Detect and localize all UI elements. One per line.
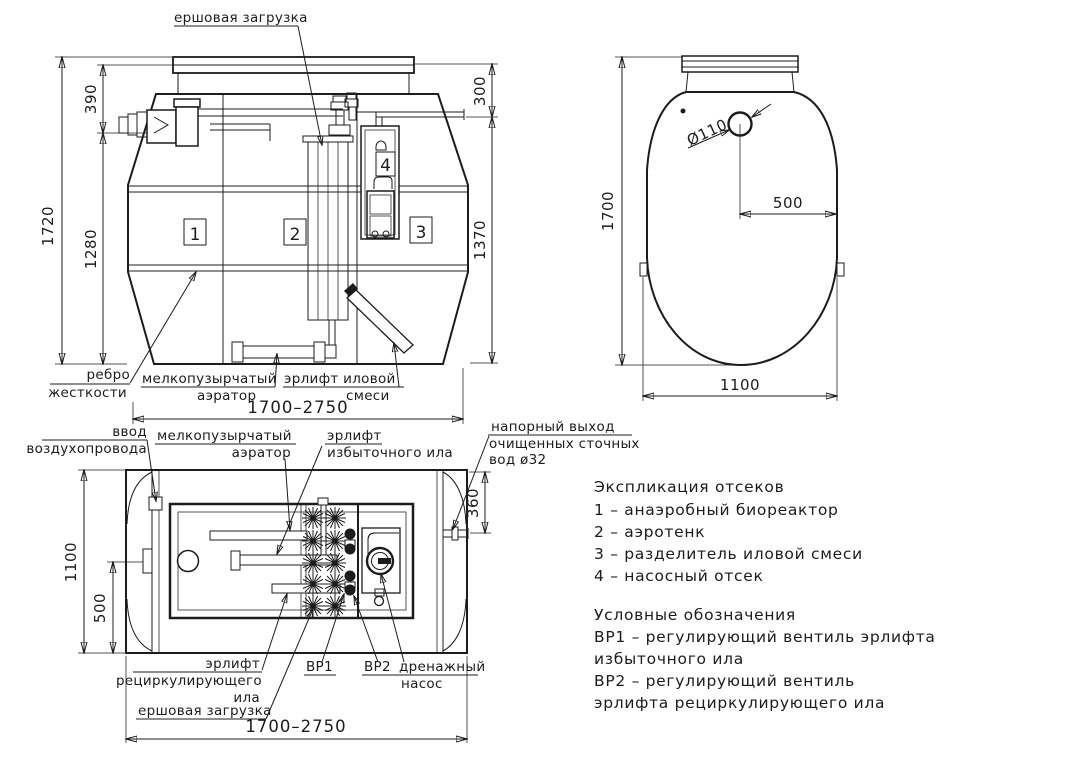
- ersh-load-label: ершовая загрузка: [174, 10, 308, 26]
- recirc-label-line2: рециркулирующего: [116, 673, 262, 689]
- air-inlet-label-line1: ввод: [112, 424, 147, 440]
- rib-label-line1: ребро: [86, 367, 130, 383]
- dimension-1720: 1720: [39, 57, 172, 364]
- excess-airlift-label-line1: эрлифт: [327, 428, 382, 444]
- sludge-airlift-label-line2: смеси: [346, 388, 390, 404]
- outlet-label-line3: вод ø32: [489, 452, 546, 468]
- dim-front-width-value: 1700–2750: [247, 398, 348, 417]
- dimension-500-plan: 500: [91, 562, 143, 653]
- dim-390-value: 390: [82, 84, 100, 114]
- drain-pump-label-line2: насос: [401, 676, 443, 692]
- dimension-360: 360: [464, 472, 491, 533]
- explication-item-1: 1 – анаэробный биореактор: [594, 501, 839, 519]
- right-lug: [837, 263, 844, 276]
- label-vr2: ВР2: [354, 596, 398, 675]
- label-air-inlet: ввод воздухопровода: [26, 424, 156, 501]
- dimension-1100-top: 1100: [643, 277, 837, 401]
- technical-drawing-canvas: 1 2 3 4 ершовая загрузка ребро жесткости…: [0, 0, 1080, 772]
- dim-1280-value: 1280: [82, 229, 100, 269]
- front-section-view: 1 2 3 4 ершовая загрузка ребро жесткости…: [39, 10, 498, 424]
- rib-label-line2: жесткости: [48, 385, 127, 401]
- tank-shell-top-outline: [647, 92, 837, 365]
- inspection-hole: Ø110: [684, 104, 771, 219]
- dim-1370-value: 1370: [471, 220, 489, 260]
- explication-item-4: 4 – насосный отсек: [594, 567, 764, 585]
- vent-dot: [681, 109, 686, 114]
- outlet-label-line1: напорный выход: [491, 419, 615, 435]
- sludge-airlift-label-line1: эрлифт иловой: [284, 371, 396, 387]
- dim-300-value: 300: [471, 76, 489, 106]
- dim-hole-value: Ø110: [684, 115, 730, 149]
- compartment-3-number: 3: [416, 223, 427, 243]
- label-recirc-airlift: эрлифт рециркулирующего ила: [116, 594, 287, 706]
- fine-bubble-aerator-front: [232, 320, 336, 362]
- symbols-item-2: избыточного ила: [594, 650, 744, 668]
- dim-1720-value: 1720: [39, 206, 57, 246]
- dim-1100-plan-value: 1100: [62, 542, 80, 582]
- dimension-500-top: 500: [740, 194, 836, 214]
- aerator-tube-plan: [210, 531, 307, 540]
- left-stub: [143, 549, 152, 573]
- pump-bay-plan: [362, 528, 400, 606]
- recirc-label-line1: эрлифт: [205, 656, 260, 672]
- plan-view: ввод воздухопровода мелкопузырчатый аэра…: [26, 419, 639, 743]
- symbols-item-1: ВР1 – регулирующий вентиль эрлифта: [594, 628, 936, 646]
- symbols-item-3: ВР2 – регулирующий вентиль: [594, 672, 855, 690]
- dim-1100-top-value: 1100: [720, 376, 760, 394]
- top-view-lid: [682, 56, 798, 92]
- legend-block: Экспликация отсеков 1 – анаэробный биоре…: [594, 478, 936, 712]
- drawing-page: 1 2 3 4 ершовая загрузка ребро жесткости…: [0, 0, 1080, 772]
- explication-title: Экспликация отсеков: [594, 478, 784, 496]
- regulating-valves: [345, 529, 356, 596]
- aerator-label-line1: мелкопузырчатый: [142, 371, 277, 387]
- dim-plan-length-value: 1700–2750: [245, 717, 346, 736]
- compartment-4-number: 4: [380, 156, 391, 176]
- vr1-label: ВР1: [306, 659, 333, 675]
- symbols-item-4: эрлифта рециркулирующего ила: [594, 694, 885, 712]
- label-aerator-plan: мелкопузырчатый аэратор: [155, 428, 296, 530]
- top-view: Ø110 500 1700 1100: [599, 56, 844, 401]
- dim-1700-value: 1700: [599, 191, 617, 231]
- label-drain-pump: дренажный насос: [381, 574, 485, 692]
- front-lid: [173, 57, 414, 94]
- symbols-title: Условные обозначения: [594, 606, 796, 624]
- dimension-1100-plan: 1100: [62, 470, 126, 653]
- plan-hatch-circle: [178, 551, 199, 572]
- sludge-airlift-pipe: [344, 283, 413, 353]
- aerator-plan-label-line2: аэратор: [232, 445, 291, 461]
- explication-item-2: 2 – аэротенк: [594, 523, 705, 541]
- left-lug: [640, 263, 647, 276]
- dim-360-value: 360: [464, 488, 482, 518]
- label-aerator-front: мелкопузырчатый аэратор: [141, 354, 277, 404]
- aerator-plan-label-line1: мелкопузырчатый: [157, 428, 292, 444]
- outlet-label-line2: очищенных сточных: [489, 436, 640, 452]
- air-inlet-label-line2: воздухопровода: [26, 441, 147, 457]
- excess-airlift-label-line2: избыточного ила: [327, 445, 453, 461]
- compartment-2-number: 2: [290, 225, 301, 245]
- explication-item-3: 3 – разделитель иловой смеси: [594, 545, 863, 563]
- pressure-outlet-stub: [443, 527, 468, 540]
- drain-pump-label-line1: дренажный: [399, 659, 485, 675]
- inlet-pipe: [119, 99, 200, 146]
- compartment-1-number: 1: [190, 225, 201, 245]
- pump-compartment-front: [361, 126, 399, 239]
- dim-500-plan-value: 500: [91, 593, 109, 623]
- dim-500-top-value: 500: [773, 194, 803, 212]
